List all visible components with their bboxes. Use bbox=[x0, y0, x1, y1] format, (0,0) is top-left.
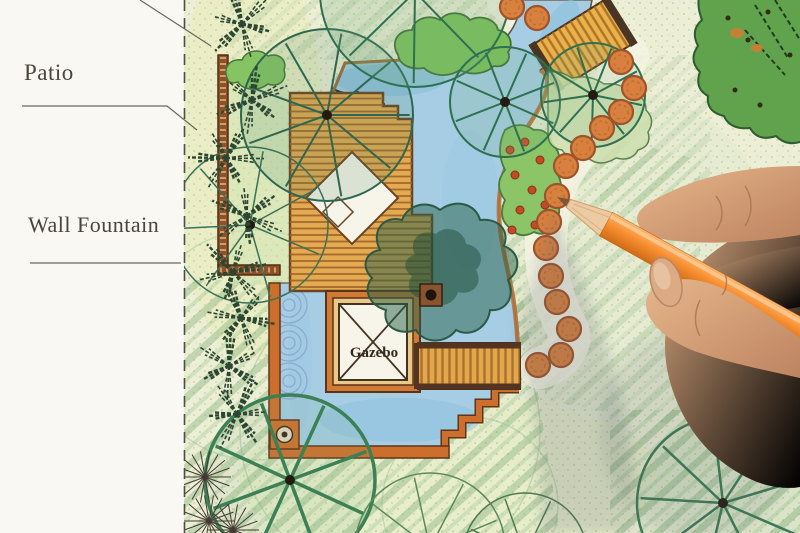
seed-dot bbox=[788, 53, 793, 58]
stepping-stone bbox=[500, 0, 524, 19]
gazebo-label: Gazebo bbox=[338, 345, 410, 362]
seed-dot bbox=[733, 88, 738, 93]
plan-drawing bbox=[0, 0, 800, 533]
stepping-stone bbox=[609, 50, 633, 74]
boardwalk bbox=[414, 343, 520, 389]
berry-dot bbox=[508, 226, 516, 234]
seed-dot bbox=[758, 103, 763, 108]
berry-dot bbox=[511, 171, 519, 179]
stepping-stone bbox=[590, 116, 614, 140]
wall-fountain-label: Wall Fountain bbox=[28, 212, 159, 238]
seed-dot bbox=[746, 38, 751, 43]
patio-label: Patio bbox=[24, 60, 74, 86]
stepping-stone bbox=[622, 76, 646, 100]
seed-dot bbox=[726, 16, 731, 21]
stepping-stone bbox=[554, 154, 578, 178]
seed-dot bbox=[766, 10, 771, 15]
berry-dot bbox=[536, 156, 544, 164]
berry-dot bbox=[528, 186, 536, 194]
berry-dot bbox=[516, 206, 524, 214]
stepping-stone bbox=[525, 6, 549, 30]
landscape-plan-photo: Patio Wall Fountain Gazebo bbox=[0, 0, 800, 533]
